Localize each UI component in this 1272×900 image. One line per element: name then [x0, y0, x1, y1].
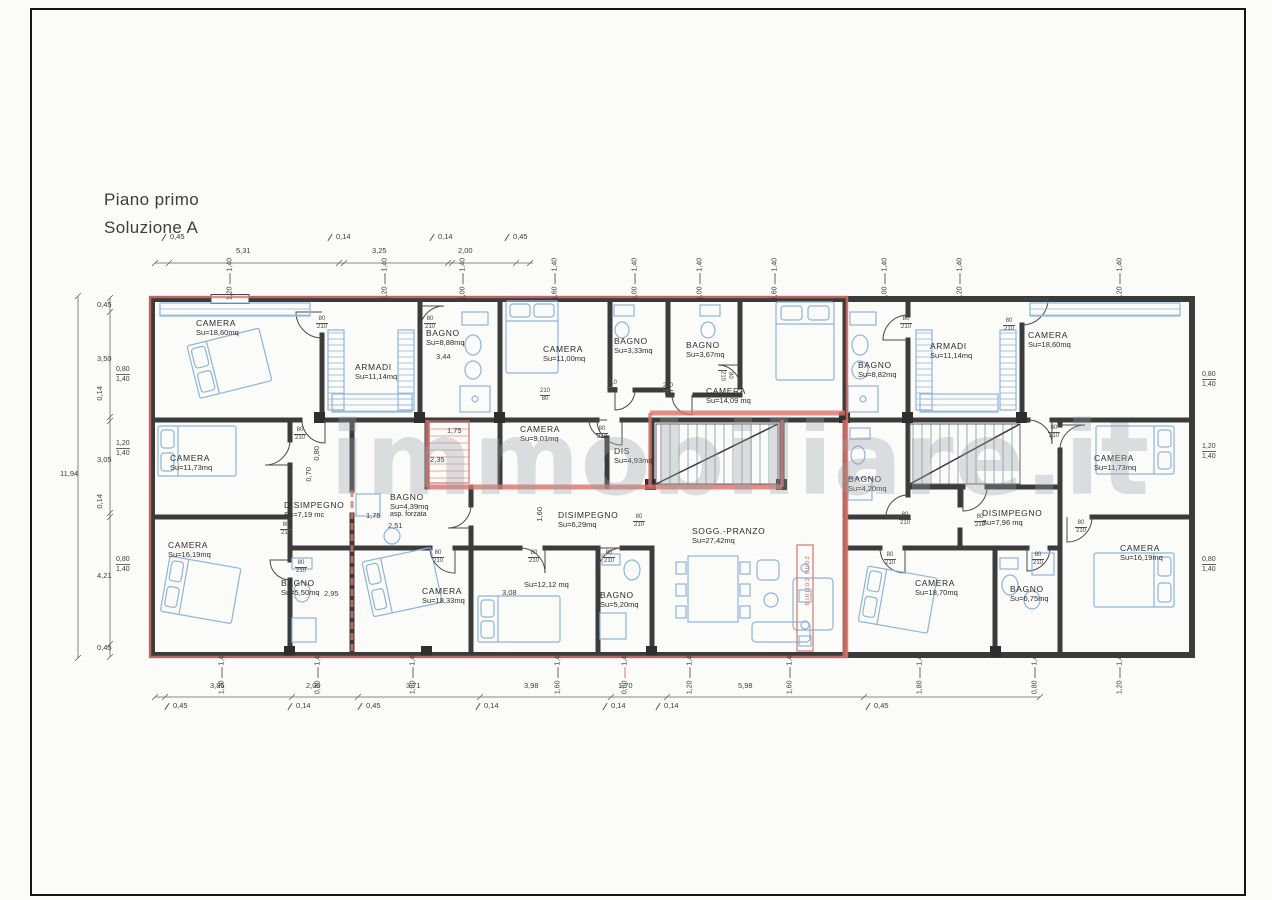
scanned-floor-plan-sheet: Piano primo Soluzione A: [0, 0, 1272, 900]
stairwells: [656, 424, 1020, 484]
floor-plan-drawing: [0, 0, 1272, 900]
dimension-lines: [75, 260, 1043, 700]
